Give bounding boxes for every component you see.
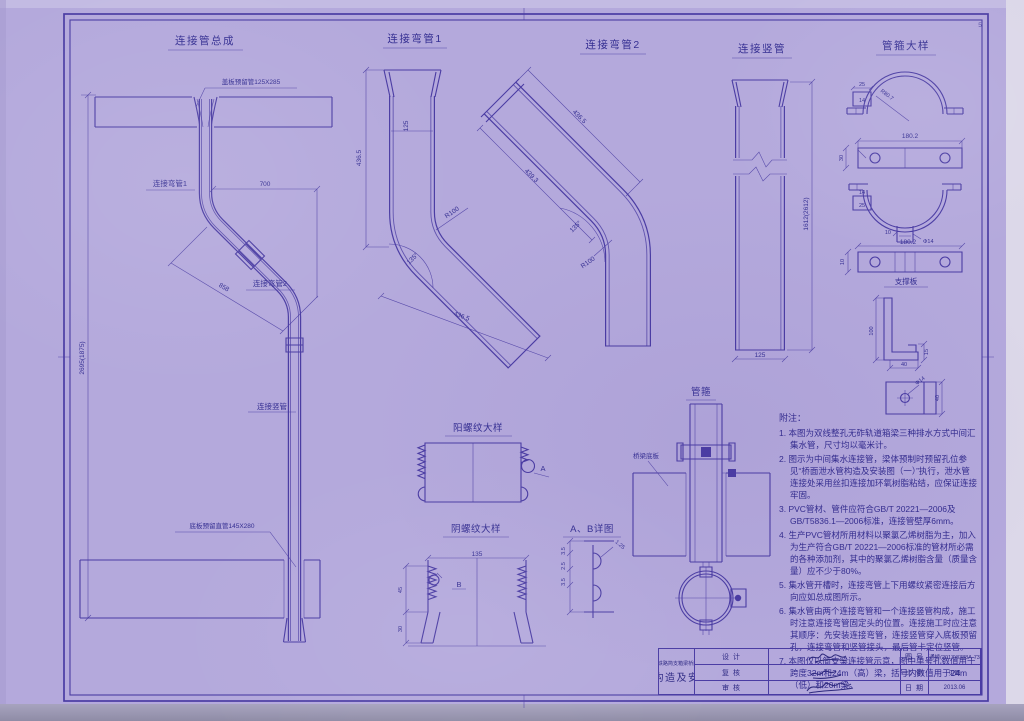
dim-10: 10	[840, 259, 846, 265]
fig-bend1: 连接弯管1 125 436.5 135° R100 436.5	[356, 32, 551, 368]
pipe-clamp-dim-lines	[648, 400, 737, 635]
bend2-dim-angle: 135°	[568, 219, 583, 234]
female-thread-title: 阴螺纹大样	[451, 523, 501, 535]
ab-dim-b: 2.5	[561, 562, 567, 570]
dim-width-top: 180.2	[902, 133, 919, 140]
scale-label: 比 例	[901, 665, 929, 681]
fig-pipe-clamp: 管箍 桥梁底板	[633, 386, 770, 635]
dim-30: 30	[839, 155, 845, 161]
plate-title: 支撑板	[895, 276, 918, 286]
dim-14: 14	[859, 98, 865, 104]
drawing-no-value: 通桥(2013)8388A-73	[929, 649, 981, 665]
ab-dim-c: 3.5	[561, 578, 567, 586]
role-check-label: 复 核	[695, 665, 769, 681]
scale-value: 见图	[929, 665, 981, 681]
note-item: 1. 本图为双线整孔无砟轨道箱梁三种排水方式中间汇集水管，尺寸均以毫米计。	[779, 427, 977, 451]
plate-width: 40	[935, 395, 941, 401]
drawing-no-label: 图 号	[901, 649, 929, 665]
assembly-dim-700: 700	[260, 181, 271, 188]
drawing-title: 桥面泄水管构造及安装图（二）	[659, 669, 695, 684]
bend2-title: 连接弯管2	[585, 38, 640, 51]
plate-hole: Φ14	[914, 376, 926, 387]
assembly-bend2-label: 连接弯管2	[253, 278, 287, 288]
dim-45: 45	[398, 587, 404, 593]
role-review-label: 审 核	[695, 681, 769, 694]
male-thread-linework	[418, 443, 535, 502]
fig-ab-detail: A、B详图 3.5 2.5 3.5 1.25	[561, 523, 626, 618]
note-item: 2. 图示为中间集水连接管，梁体预制时预留孔位参见“桥面泄水管构造及安装图（一）…	[779, 453, 977, 501]
fig-male-thread: 阳螺纹大样 A	[418, 422, 549, 502]
note-item: 3. PVC管材、管件应符合GB/T 20221—2006及GB/T5836.1…	[779, 503, 977, 527]
bracket-lip: 15	[924, 349, 930, 355]
pipe-clamp-title: 管箍	[691, 386, 711, 398]
male-thread-title: 阳螺纹大样	[453, 422, 503, 434]
riser-dim-height: 1612(2612)	[803, 197, 810, 230]
bend1-title: 连接弯管1	[387, 32, 442, 45]
bend2-dim-leg2: 439.3	[523, 168, 540, 185]
slab-label: 桥梁底板	[633, 451, 660, 460]
blueprint-scan: 5 连接管总成 盖板预留管125X285 连接弯管1 连接弯管2 连接竖管 底板…	[0, 0, 1024, 721]
pipe-clamp-bolts	[701, 447, 741, 601]
dim-135: 135	[472, 551, 483, 558]
dim-25b: 25	[859, 203, 865, 209]
dim-hole: Φ14	[923, 239, 934, 245]
assembly-bend1-label: 连接弯管1	[153, 178, 187, 188]
title-block: 设 计 时速350公里高速铁路简支箱梁桥面附属设施通用图 桥面泄水管构造及安装图…	[658, 648, 982, 695]
note-item: 4. 生产PVC管材所用材料以聚氯乙烯树脂为主，加入为生产符合GB/T 2022…	[779, 529, 977, 577]
riser-title: 连接竖管	[738, 42, 786, 55]
ab-title: A、B详图	[570, 523, 614, 535]
bracket-height: 100	[869, 326, 875, 335]
dim-width-bottom: 180.2	[900, 239, 917, 246]
bracket-width: 40	[901, 362, 907, 368]
drawing-title-cell: 时速350公里高速铁路简支箱梁桥面附属设施通用图 桥面泄水管构造及安装图（二）	[659, 649, 695, 694]
dim-notch-10: 10	[885, 230, 891, 236]
bend2-dim-leg1: 436.5	[571, 109, 588, 126]
detail-marker-b: B	[456, 580, 461, 589]
ab-dim-leader: 1.25	[614, 539, 626, 550]
pipe-clamp-linework	[633, 404, 770, 630]
clamp-title: 管箍大样	[882, 39, 930, 52]
corner-mark: 5	[978, 22, 982, 29]
assembly-dim-height: 2695(1875)	[79, 341, 86, 374]
notes-heading: 附注：	[779, 412, 977, 424]
ab-linework	[584, 541, 614, 618]
note-item: 6. 集水管由两个连接弯管和一个连接竖管构成，施工时注意连接弯管固定头的位置。连…	[779, 605, 977, 653]
project-line: 时速350公里高速铁路简支箱梁桥面附属设施通用图	[659, 659, 695, 666]
break-blank	[734, 158, 786, 176]
bend2-dim-radius: R100	[580, 255, 597, 270]
detail-marker-a: A	[540, 464, 545, 473]
ab-dim-lines	[563, 537, 621, 615]
riser-dim-bore: 125	[755, 352, 766, 359]
fig-clamp-detail: 管箍大样 25 14 R80.7 180.2 30 14 25 10 Φ14 1…	[839, 39, 965, 417]
dim-14b: 14	[859, 190, 865, 196]
check-signature	[769, 665, 901, 681]
role-design-label: 设 计	[695, 649, 769, 665]
fig-assembly: 连接管总成 盖板预留管125X285 连接弯管1 连接弯管2 连接竖管 底板预留…	[79, 34, 332, 642]
note-item: 5. 集水管开槽时，连接弯管上下用螺纹紧密连接后方向应如总成图所示。	[779, 579, 977, 603]
assembly-dim-858: 858	[217, 282, 230, 294]
bend1-dim-bore: 125	[403, 120, 410, 131]
dim-25: 25	[859, 82, 865, 88]
date-value: 2013.06	[929, 681, 981, 694]
assembly-top-label: 盖板预留管125X285	[222, 77, 281, 86]
fig-female-thread: 阴螺纹大样 135 45 30 B	[398, 523, 546, 646]
date-label: 日 期	[901, 681, 929, 694]
assembly-bottom-label: 底板预留直管145X280	[189, 521, 254, 530]
review-signature	[769, 681, 901, 694]
dim-30: 30	[398, 626, 404, 632]
ab-dim-a: 3.5	[561, 547, 567, 555]
design-signature	[769, 649, 901, 665]
fig-riser: 连接竖管 125 1612(2612)	[732, 42, 815, 362]
bend1-dim-leg1: 436.5	[356, 149, 363, 166]
bend1-dim-radius: R100	[444, 205, 461, 220]
assembly-title: 连接管总成	[175, 34, 235, 47]
assembly-riser-label: 连接竖管	[257, 401, 287, 411]
